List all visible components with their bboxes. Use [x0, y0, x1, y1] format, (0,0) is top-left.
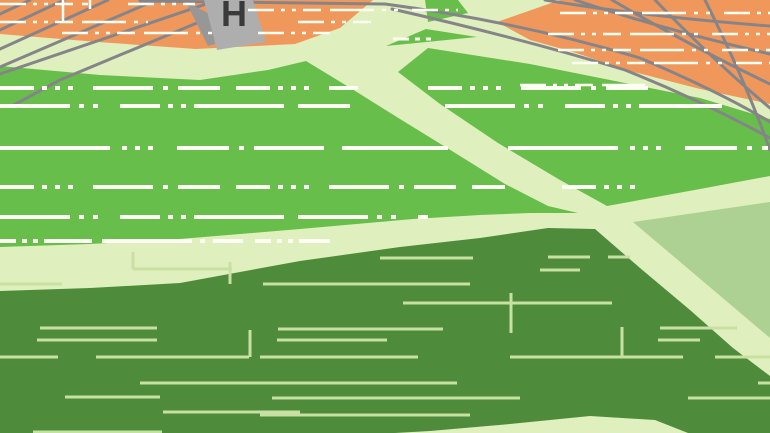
- building-label-h: H: [221, 0, 246, 34]
- map-viewport[interactable]: H: [0, 0, 770, 433]
- map-canvas[interactable]: H: [0, 0, 770, 433]
